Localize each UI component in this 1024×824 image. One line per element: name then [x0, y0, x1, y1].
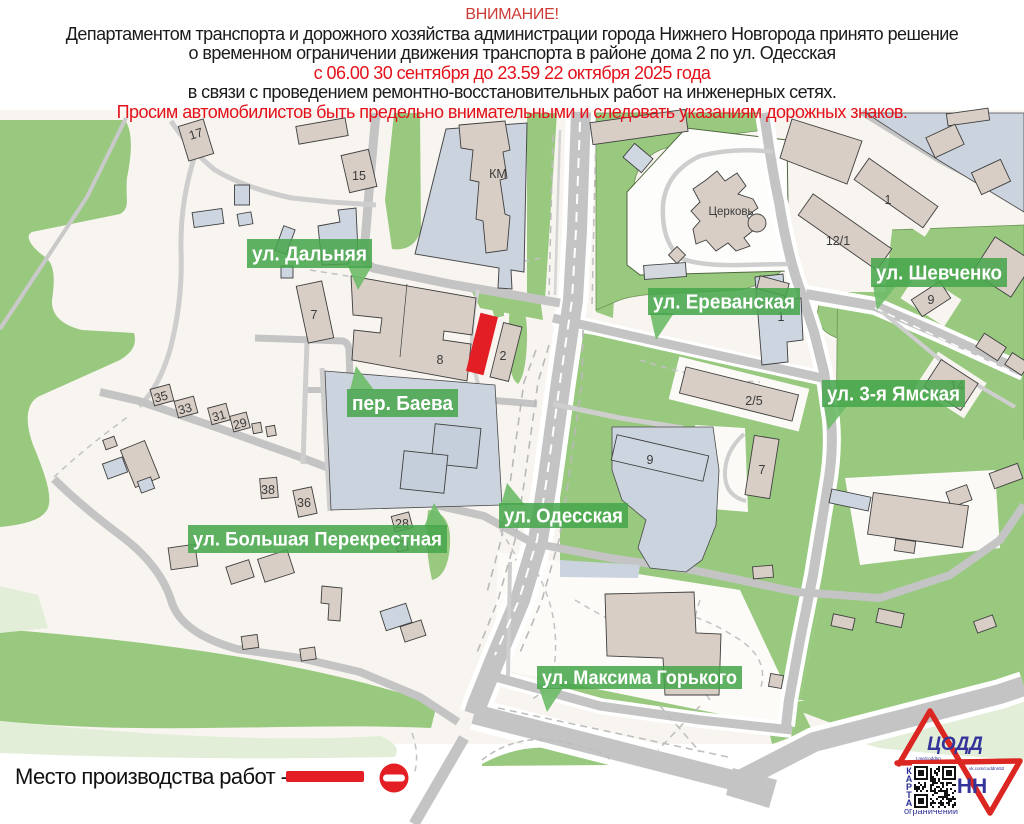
- svg-text:ЦОДД: ЦОДД: [927, 734, 983, 755]
- svg-text:36: 36: [297, 496, 311, 510]
- svg-text:ул. Дальняя: ул. Дальняя: [252, 244, 367, 266]
- svg-text:vk.com/coddnn52: vk.com/coddnn52: [969, 766, 1005, 771]
- svg-text:ул. Ереванская: ул. Ереванская: [653, 292, 795, 314]
- svg-text:7: 7: [759, 463, 766, 477]
- svg-text:КМ: КМ: [489, 167, 507, 181]
- svg-text:Церковь: Церковь: [709, 206, 754, 218]
- svg-text:ул. Максима Горького: ул. Максима Горького: [542, 668, 737, 689]
- svg-text:15: 15: [352, 169, 366, 183]
- svg-text:ул. Большая Перекрестная: ул. Большая Перекрестная: [193, 530, 442, 551]
- svg-text:7: 7: [311, 308, 318, 322]
- svg-text:ул. 3-я Ямская: ул. 3-я Ямская: [827, 384, 960, 406]
- svg-text:8: 8: [437, 353, 444, 367]
- svg-text:1: 1: [885, 193, 892, 207]
- svg-text:Место производства работ -: Место производства работ -: [15, 764, 288, 789]
- svg-text:2/5: 2/5: [745, 394, 762, 408]
- svg-text:9: 9: [647, 453, 654, 467]
- svg-text:t.me/coddnn: t.me/coddnn: [916, 756, 941, 761]
- svg-text:пер. Баева: пер. Баева: [352, 393, 454, 415]
- svg-text:9: 9: [928, 293, 935, 307]
- svg-text:12/1: 12/1: [826, 234, 850, 248]
- svg-text:2: 2: [500, 349, 507, 363]
- svg-text:НН: НН: [957, 775, 987, 798]
- svg-text:38: 38: [261, 483, 275, 497]
- svg-text:ул. Одесская: ул. Одесская: [504, 506, 623, 528]
- svg-text:ул. Шевченко: ул. Шевченко: [876, 263, 1002, 285]
